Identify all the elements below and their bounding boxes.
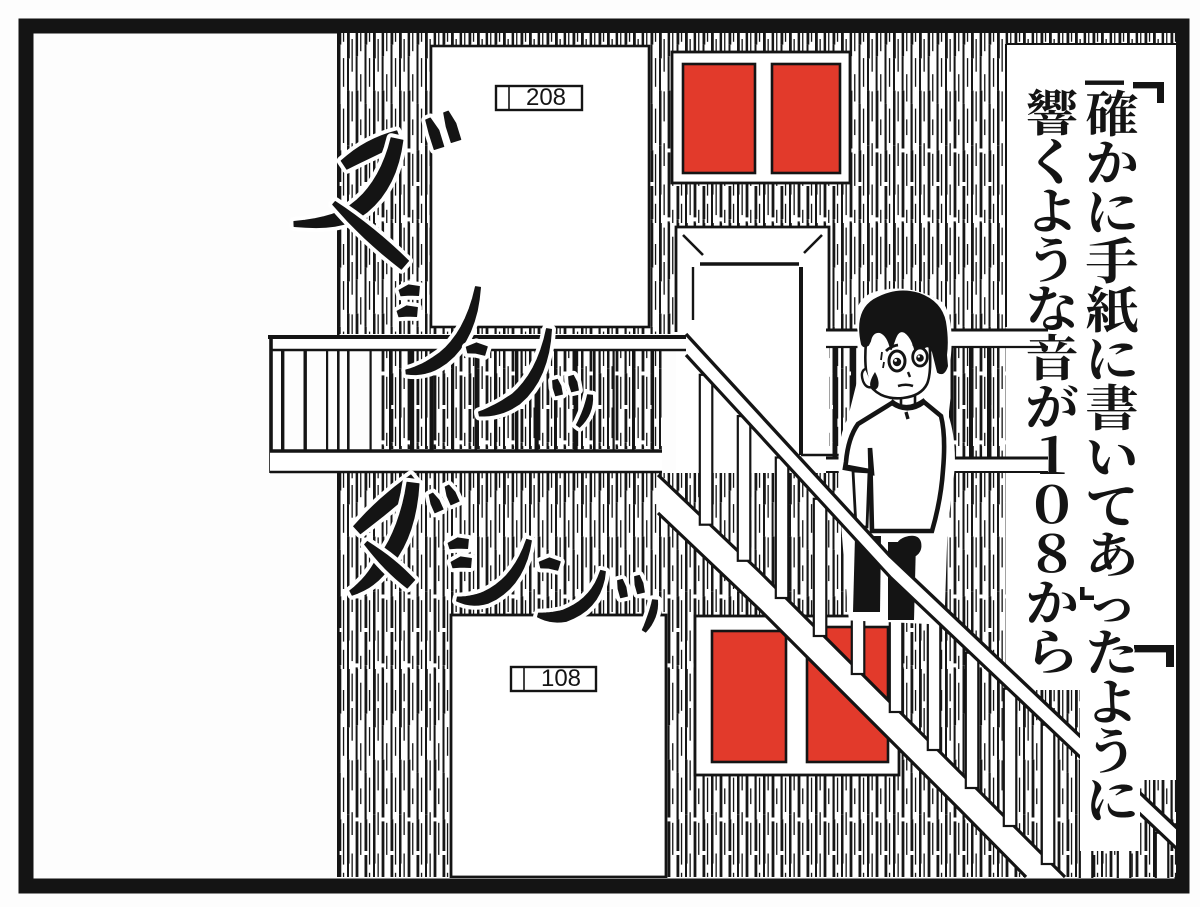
svg-text:208: 208 (526, 84, 566, 111)
svg-text:108: 108 (541, 665, 581, 692)
